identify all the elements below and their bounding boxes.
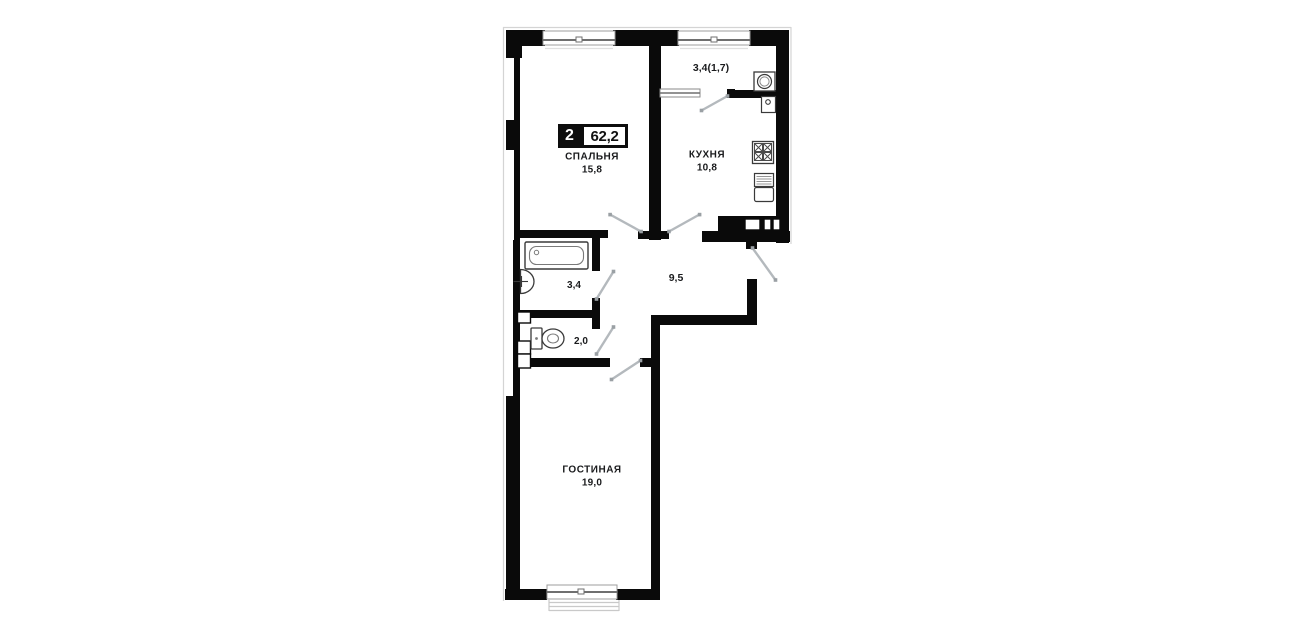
apartment-badge: 2 62,2 bbox=[558, 124, 628, 148]
room-count-badge: 2 bbox=[558, 124, 581, 148]
floorplan-canvas: 2 62,2 СПАЛЬНЯ 15,8 КУХНЯ 10,8 ГОСТИНАЯ … bbox=[0, 0, 1301, 630]
kitchen-area: 10,8 bbox=[689, 163, 725, 175]
stove-icon bbox=[753, 142, 774, 164]
kitchen-sink-icon bbox=[755, 174, 774, 202]
walls bbox=[505, 30, 790, 600]
bathtub-icon bbox=[525, 242, 588, 269]
living-room-area: 19,0 bbox=[562, 478, 621, 490]
toilet-area-label: 2,0 bbox=[574, 336, 588, 348]
bedroom-door-swing bbox=[610, 215, 641, 232]
bedroom-area: 15,8 bbox=[565, 165, 619, 177]
living-room-label: ГОСТИНАЯ 19,0 bbox=[562, 465, 621, 490]
kitchen-name: КУХНЯ bbox=[689, 150, 725, 162]
kitchen-label: КУХНЯ 10,8 bbox=[689, 150, 725, 175]
living-room-name: ГОСТИНАЯ bbox=[562, 465, 621, 477]
bathroom-door-swing bbox=[597, 272, 614, 300]
toilet-door-swing bbox=[597, 327, 614, 354]
hallway-area-label: 9,5 bbox=[669, 272, 684, 284]
loggia-door-swing bbox=[702, 96, 728, 111]
loggia-area-label: 3,4(1,7) bbox=[693, 62, 729, 74]
floorplan-drawing bbox=[0, 0, 1301, 630]
bathroom-area-label: 3,4 bbox=[567, 280, 581, 292]
loggia-window bbox=[678, 31, 750, 49]
living-room-window bbox=[547, 585, 619, 611]
washing-machine-icon bbox=[754, 72, 775, 91]
kitchen-door-swing bbox=[669, 215, 700, 232]
bedroom-label: СПАЛЬНЯ 15,8 bbox=[565, 152, 619, 177]
living-room-door-swing bbox=[612, 361, 641, 380]
total-area-badge: 62,2 bbox=[581, 124, 628, 148]
bedroom-window bbox=[543, 31, 615, 49]
loggia-partition-window bbox=[660, 89, 700, 97]
water-heater-icon bbox=[762, 97, 776, 113]
entrance-door-swing bbox=[753, 248, 776, 280]
toilet-icon bbox=[531, 328, 564, 349]
bedroom-name: СПАЛЬНЯ bbox=[565, 152, 619, 164]
